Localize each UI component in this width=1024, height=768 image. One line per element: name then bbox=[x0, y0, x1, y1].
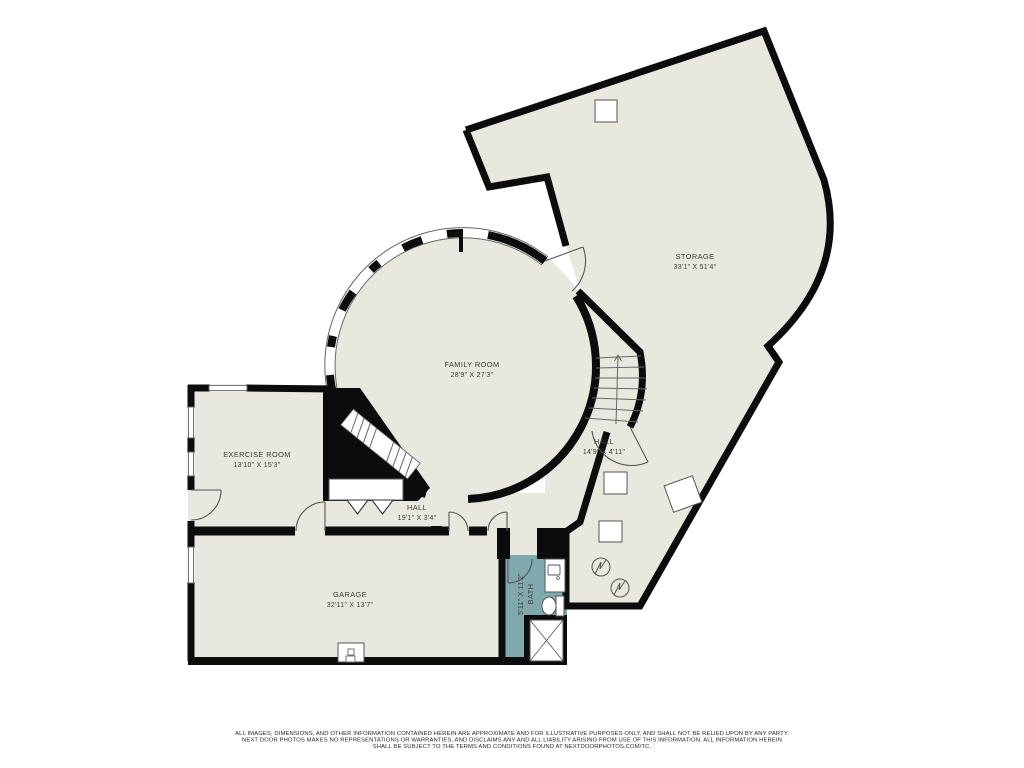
disclaimer-line-1: ALL IMAGES, DIMENSIONS, AND OTHER INFORM… bbox=[235, 731, 789, 737]
disclaimer-line-2: NEXT DOOR PHOTOS MAKES NO REPRESENTATION… bbox=[242, 738, 782, 744]
exercise-left-window-1 bbox=[187, 407, 195, 438]
garage-utility-notch bbox=[346, 656, 355, 662]
hall-right-dims: 14'9" X 4'11" bbox=[583, 449, 626, 456]
bath-dims: 5'11" X 11'2" bbox=[518, 573, 525, 615]
storage-column-post bbox=[595, 100, 617, 122]
disclaimer: ALL IMAGES, DIMENSIONS, AND OTHER INFORM… bbox=[235, 731, 789, 750]
exercise-left-window-2 bbox=[187, 452, 195, 476]
garage-left-window bbox=[187, 547, 195, 583]
post-1 bbox=[604, 472, 627, 494]
hall-lower-label: HALL bbox=[407, 503, 427, 512]
bath-wall-block-left bbox=[497, 528, 510, 559]
storage-room-dims: 33'1" X 51'4" bbox=[674, 264, 717, 271]
floor-fills bbox=[188, 31, 830, 664]
circle-wall-8 bbox=[447, 233, 463, 234]
exercise-top-window bbox=[209, 384, 247, 392]
exercise-room-dims: 13'10" X 15'3" bbox=[234, 462, 281, 469]
sink-vanity bbox=[545, 559, 565, 592]
garage-label: GARAGE bbox=[333, 590, 367, 599]
exercise-room-label: EXERCISE ROOM bbox=[223, 450, 291, 459]
circle-wall-6 bbox=[371, 263, 379, 270]
hall-right-label: HALL bbox=[594, 437, 614, 446]
circle-wall-4 bbox=[331, 336, 333, 347]
shower bbox=[530, 620, 563, 661]
bath-label: BATH bbox=[526, 584, 535, 605]
disclaimer-line-3: SHALL BE SUBJECT TO THE TERMS AND CONDIT… bbox=[373, 744, 652, 750]
post-2 bbox=[599, 521, 622, 542]
toilet-bowl-icon bbox=[542, 597, 556, 615]
garage-top-wall-stub bbox=[431, 526, 442, 533]
floorplan-page: STORAGE 33'1" X 51'4" FAMILY ROOM 28'9" … bbox=[0, 0, 1024, 768]
exercise-room-area bbox=[188, 385, 333, 533]
floorplan-svg: STORAGE 33'1" X 51'4" FAMILY ROOM 28'9" … bbox=[0, 0, 1024, 768]
toilet-tank bbox=[556, 596, 564, 616]
storage-room-label: STORAGE bbox=[676, 252, 715, 261]
closet-shelf bbox=[329, 479, 403, 500]
family-room-label: FAMILY ROOM bbox=[444, 360, 499, 369]
hall-lower-dims: 19'1" X 3'4" bbox=[398, 515, 437, 522]
bath-wall-block-right bbox=[537, 528, 567, 559]
garage-dims: 32'11" X 13'7" bbox=[327, 602, 374, 609]
garage-fixture bbox=[338, 643, 364, 662]
family-room-dims: 28'9" X 27'3" bbox=[451, 372, 494, 379]
